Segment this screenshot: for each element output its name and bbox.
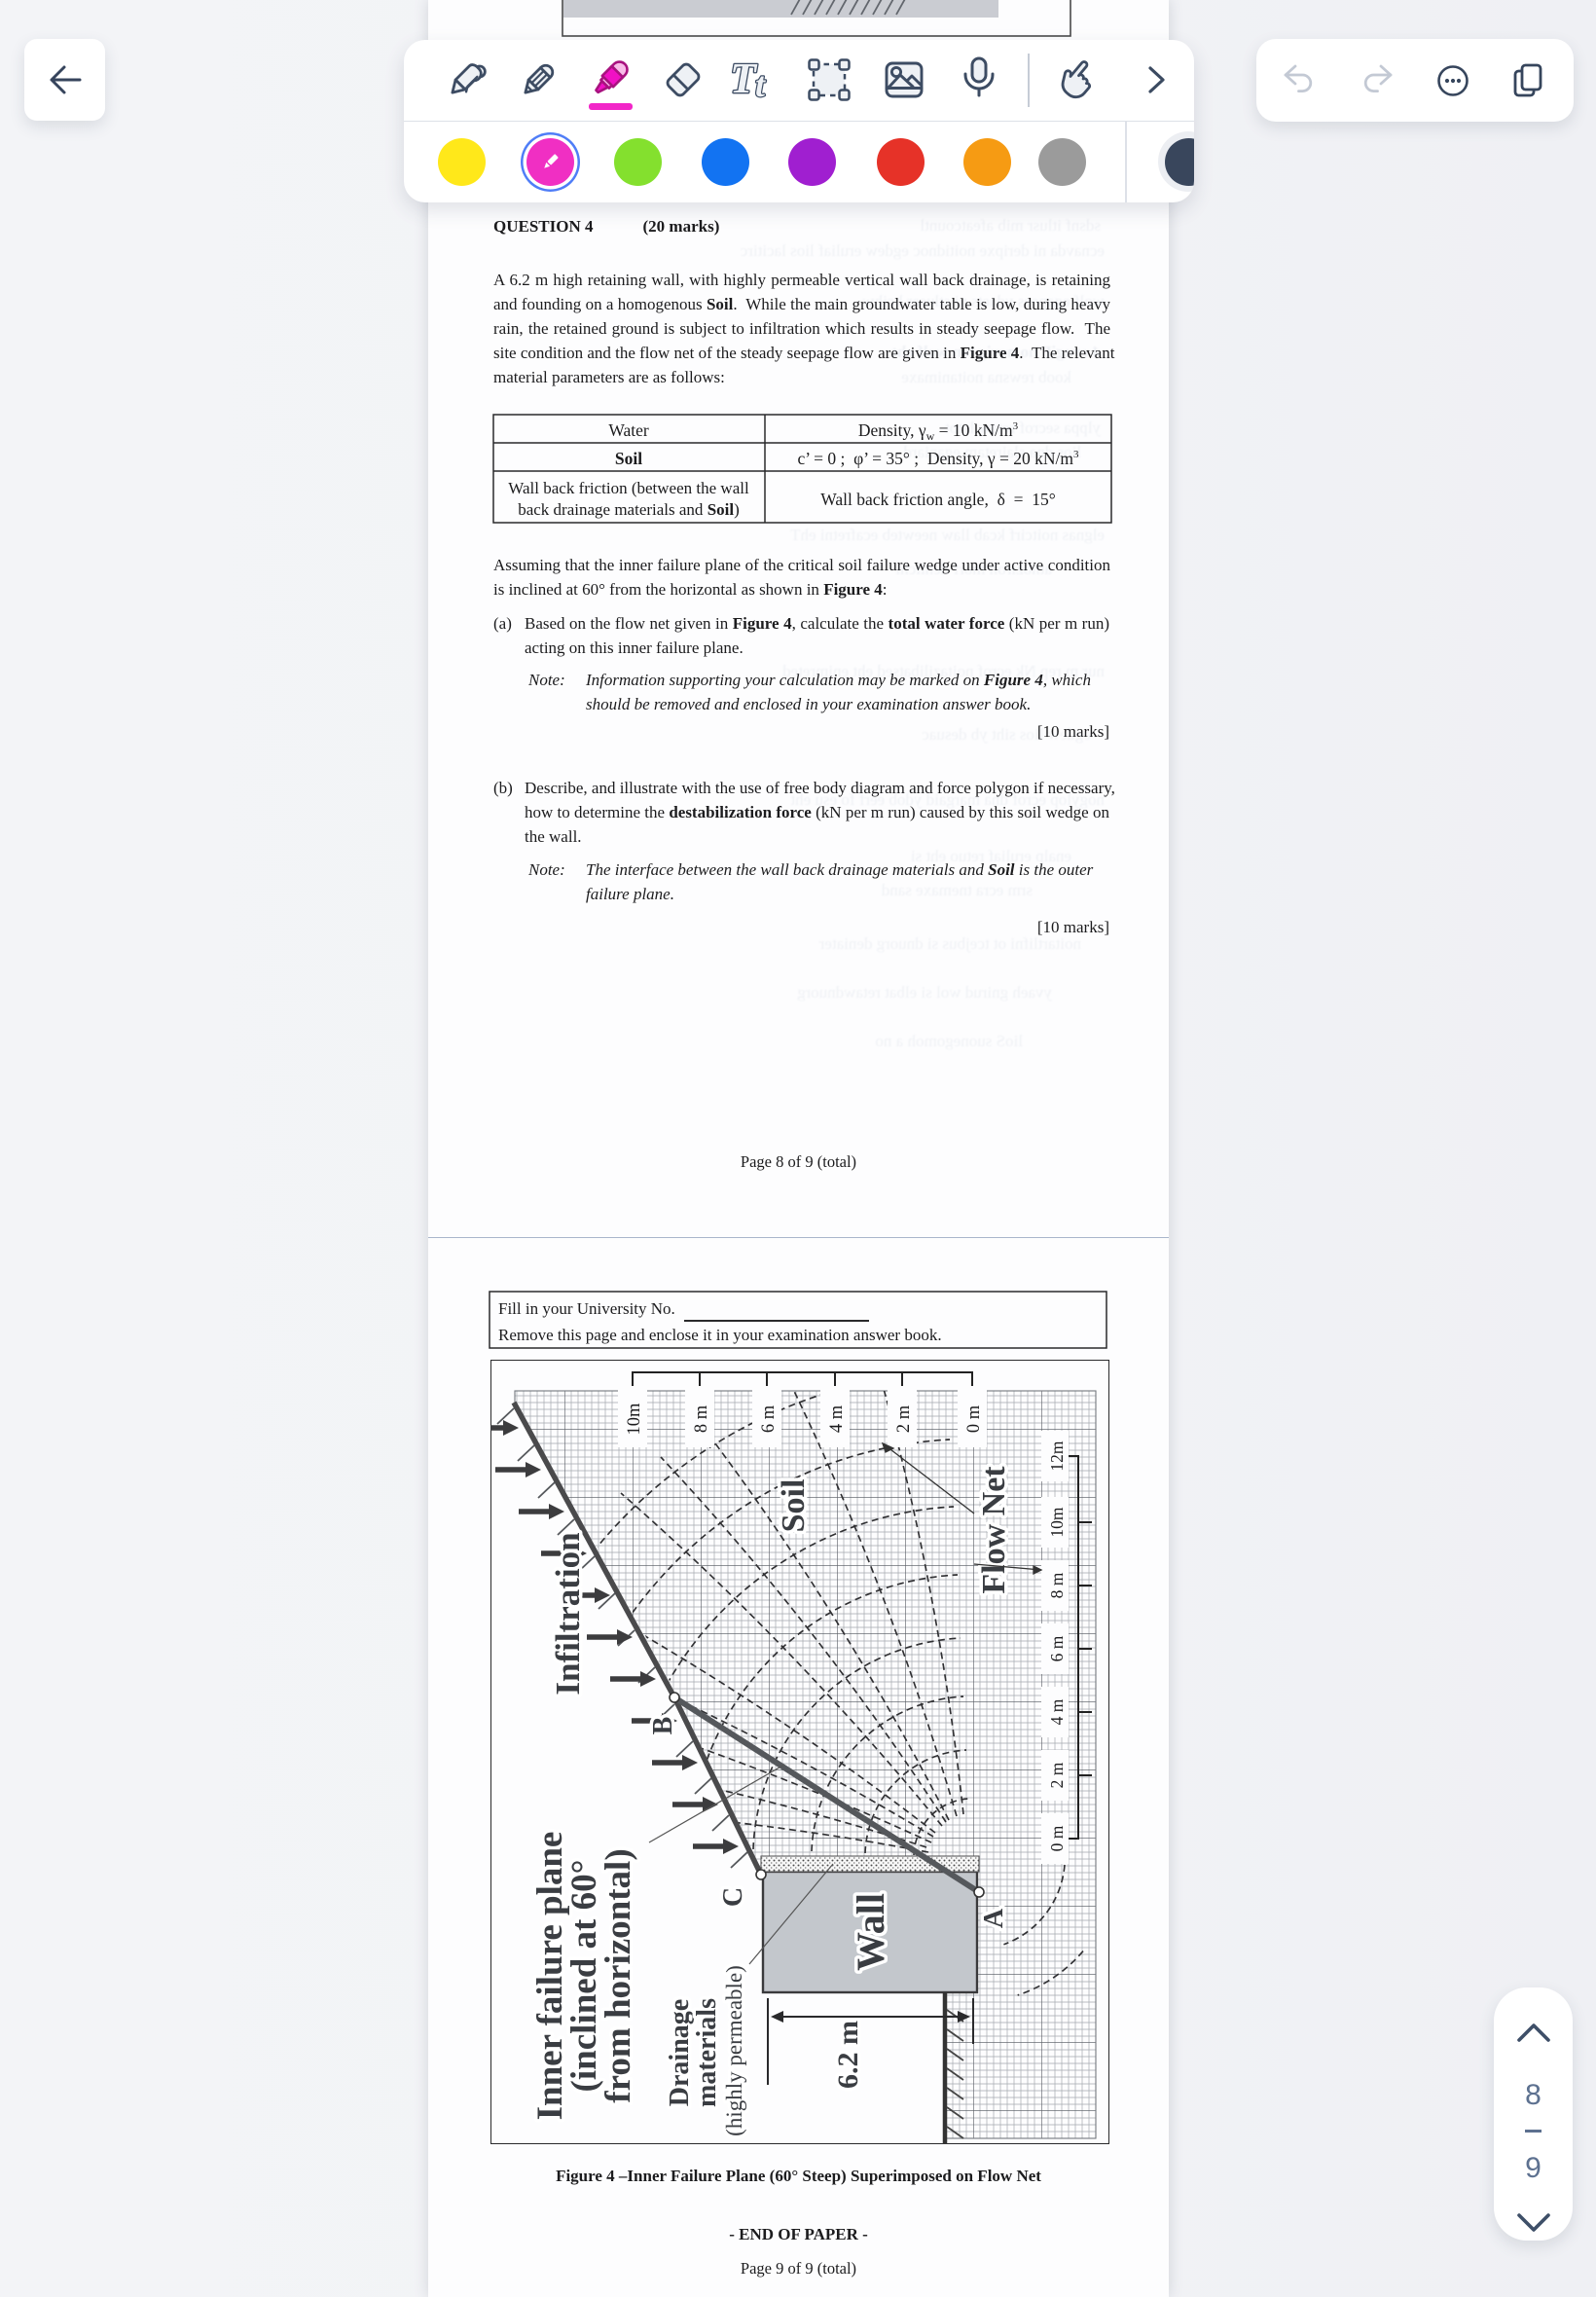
svg-text:t: t [755, 65, 766, 104]
svg-text:Wall back friction angle, δ: Wall back friction angle, δ = 15° [820, 490, 1055, 509]
svg-text:B: B [648, 1717, 678, 1735]
svg-text:Infiltration: Infiltration [549, 1532, 587, 1695]
svg-text:6 m: 6 m [759, 1404, 779, 1433]
svg-text:Density, γw = 10 kN/m3: Density, γw = 10 kN/m3 [858, 420, 1019, 443]
svg-text:(highly permeable): (highly permeable) [722, 1965, 746, 2136]
svg-text:Flow Net: Flow Net [976, 1466, 1012, 1594]
svg-text:0 m: 0 m [1047, 1825, 1067, 1851]
svg-text:4 m: 4 m [827, 1404, 847, 1433]
svg-text:6 m: 6 m [1047, 1635, 1067, 1661]
svg-text:c’ = 0 ; φ’ = 35° ; Density,: c’ = 0 ; φ’ = 35° ; Density, γ = 20 kN/m… [797, 449, 1079, 468]
svg-text:Soil: Soil [776, 1479, 812, 1533]
svg-text:C: C [718, 1887, 748, 1907]
svg-text:6.2 m: 6.2 m [832, 2021, 864, 2089]
svg-text:Soil: Soil [615, 449, 642, 468]
svg-text:Water: Water [608, 420, 649, 440]
svg-text:Wall: Wall [849, 1893, 892, 1971]
svg-text:8 m: 8 m [692, 1404, 711, 1433]
svg-text:4 m: 4 m [1047, 1698, 1067, 1725]
svg-text:from horizontal): from horizontal) [598, 1848, 638, 2102]
svg-text:Wall back friction (between th: Wall back friction (between the wall [508, 479, 749, 497]
svg-text:2 m: 2 m [1047, 1762, 1067, 1788]
svg-text:materials: materials [692, 1998, 722, 2107]
svg-text:T: T [730, 55, 758, 102]
svg-text:0 m: 0 m [964, 1404, 984, 1433]
svg-text:back drainage materials and So: back drainage materials and Soil) [518, 500, 740, 519]
svg-text:10m: 10m [625, 1403, 644, 1436]
svg-text:Drainage: Drainage [665, 1999, 695, 2106]
svg-text:2 m: 2 m [894, 1404, 914, 1433]
svg-text:10m: 10m [1047, 1507, 1067, 1538]
svg-text:8 m: 8 m [1047, 1572, 1067, 1598]
svg-text:12m: 12m [1047, 1440, 1067, 1472]
svg-text:A: A [979, 1908, 1009, 1928]
